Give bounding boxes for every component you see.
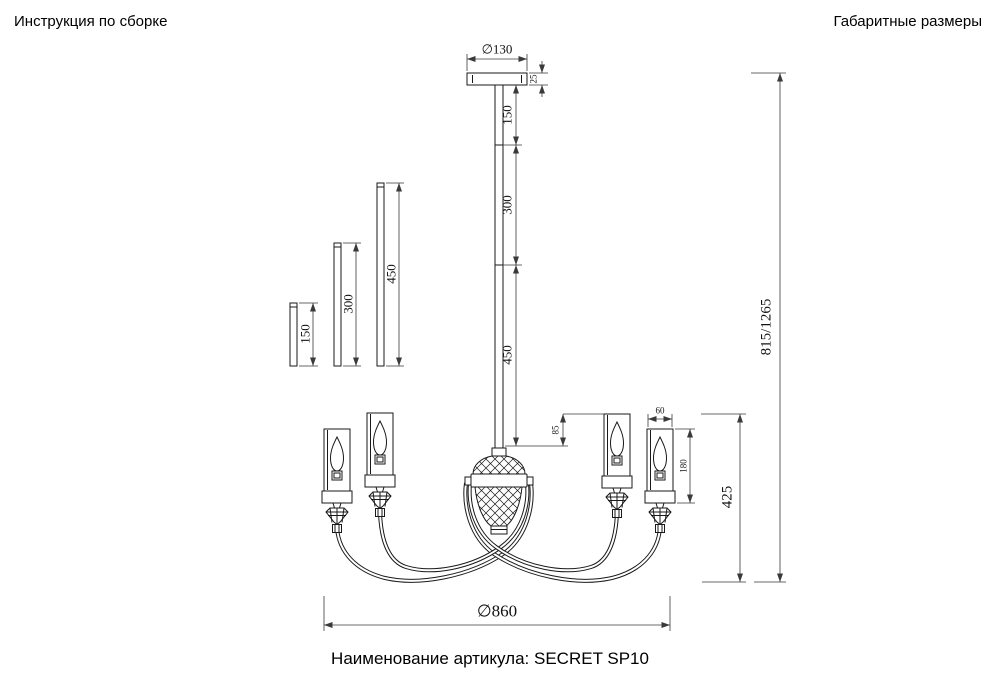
lamp-left-inner	[365, 413, 395, 517]
dim-overall-diameter: ∅860	[477, 603, 517, 620]
dim-shade-top-offset: 85	[552, 426, 561, 435]
spare-rod-short	[290, 303, 297, 366]
dim-canopy-thickness: 25	[530, 75, 539, 84]
lamp-left-outer	[322, 429, 352, 533]
dim-body-height: 425	[721, 486, 736, 509]
dim-canopy-diameter: ∅130	[482, 43, 513, 56]
dim-rod-segment-middle: 300	[501, 195, 514, 215]
dim-shade-width-lines	[648, 414, 672, 427]
dim-shade-height: 180	[680, 459, 689, 473]
hanging-rod	[495, 85, 503, 448]
dim-rod-segment-bottom: 450	[501, 345, 514, 365]
ceiling-canopy	[467, 73, 527, 85]
dim-shade-width: 60	[656, 407, 665, 416]
dim-spare-rod-long: 450	[385, 264, 398, 284]
dim-spare-rod-medium: 300	[342, 294, 355, 314]
lamp-right-outer	[645, 429, 675, 533]
assembly-drawing-page: Инструкция по сборке Габаритные размеры	[0, 0, 1000, 689]
dim-spare-rod-short: 150	[299, 324, 312, 344]
dim-rod-segments-lines	[503, 85, 568, 446]
dim-height-range: 815/1265	[760, 299, 775, 356]
dim-canopy-diameter-lines	[467, 54, 527, 71]
dim-rod-segment-top: 150	[501, 105, 514, 125]
dim-shade-offset-lines	[563, 414, 604, 446]
lamp-right-inner	[602, 414, 632, 518]
article-name: Наименование артикула: SECRET SP10	[331, 649, 649, 669]
